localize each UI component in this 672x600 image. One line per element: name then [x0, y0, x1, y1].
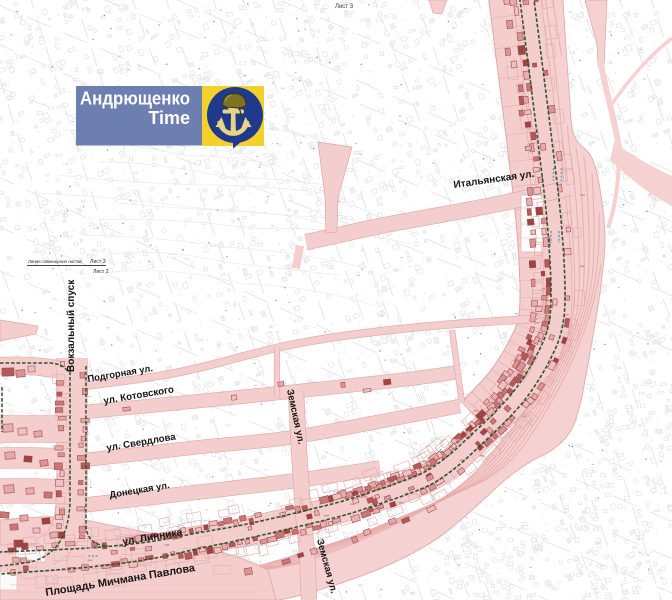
svg-text:Вокзальный спуск: Вокзальный спуск — [66, 279, 77, 372]
svg-text:Андрющенко: Андрющенко — [80, 89, 190, 109]
svg-text:Линия совмещения листов: Линия совмещения листов — [28, 259, 82, 264]
svg-text:Лист 3: Лист 3 — [90, 259, 106, 265]
svg-text:Лист 2: Лист 2 — [93, 269, 109, 275]
svg-text:Time: Time — [148, 108, 190, 128]
svg-text:Лист 3: Лист 3 — [335, 4, 354, 10]
